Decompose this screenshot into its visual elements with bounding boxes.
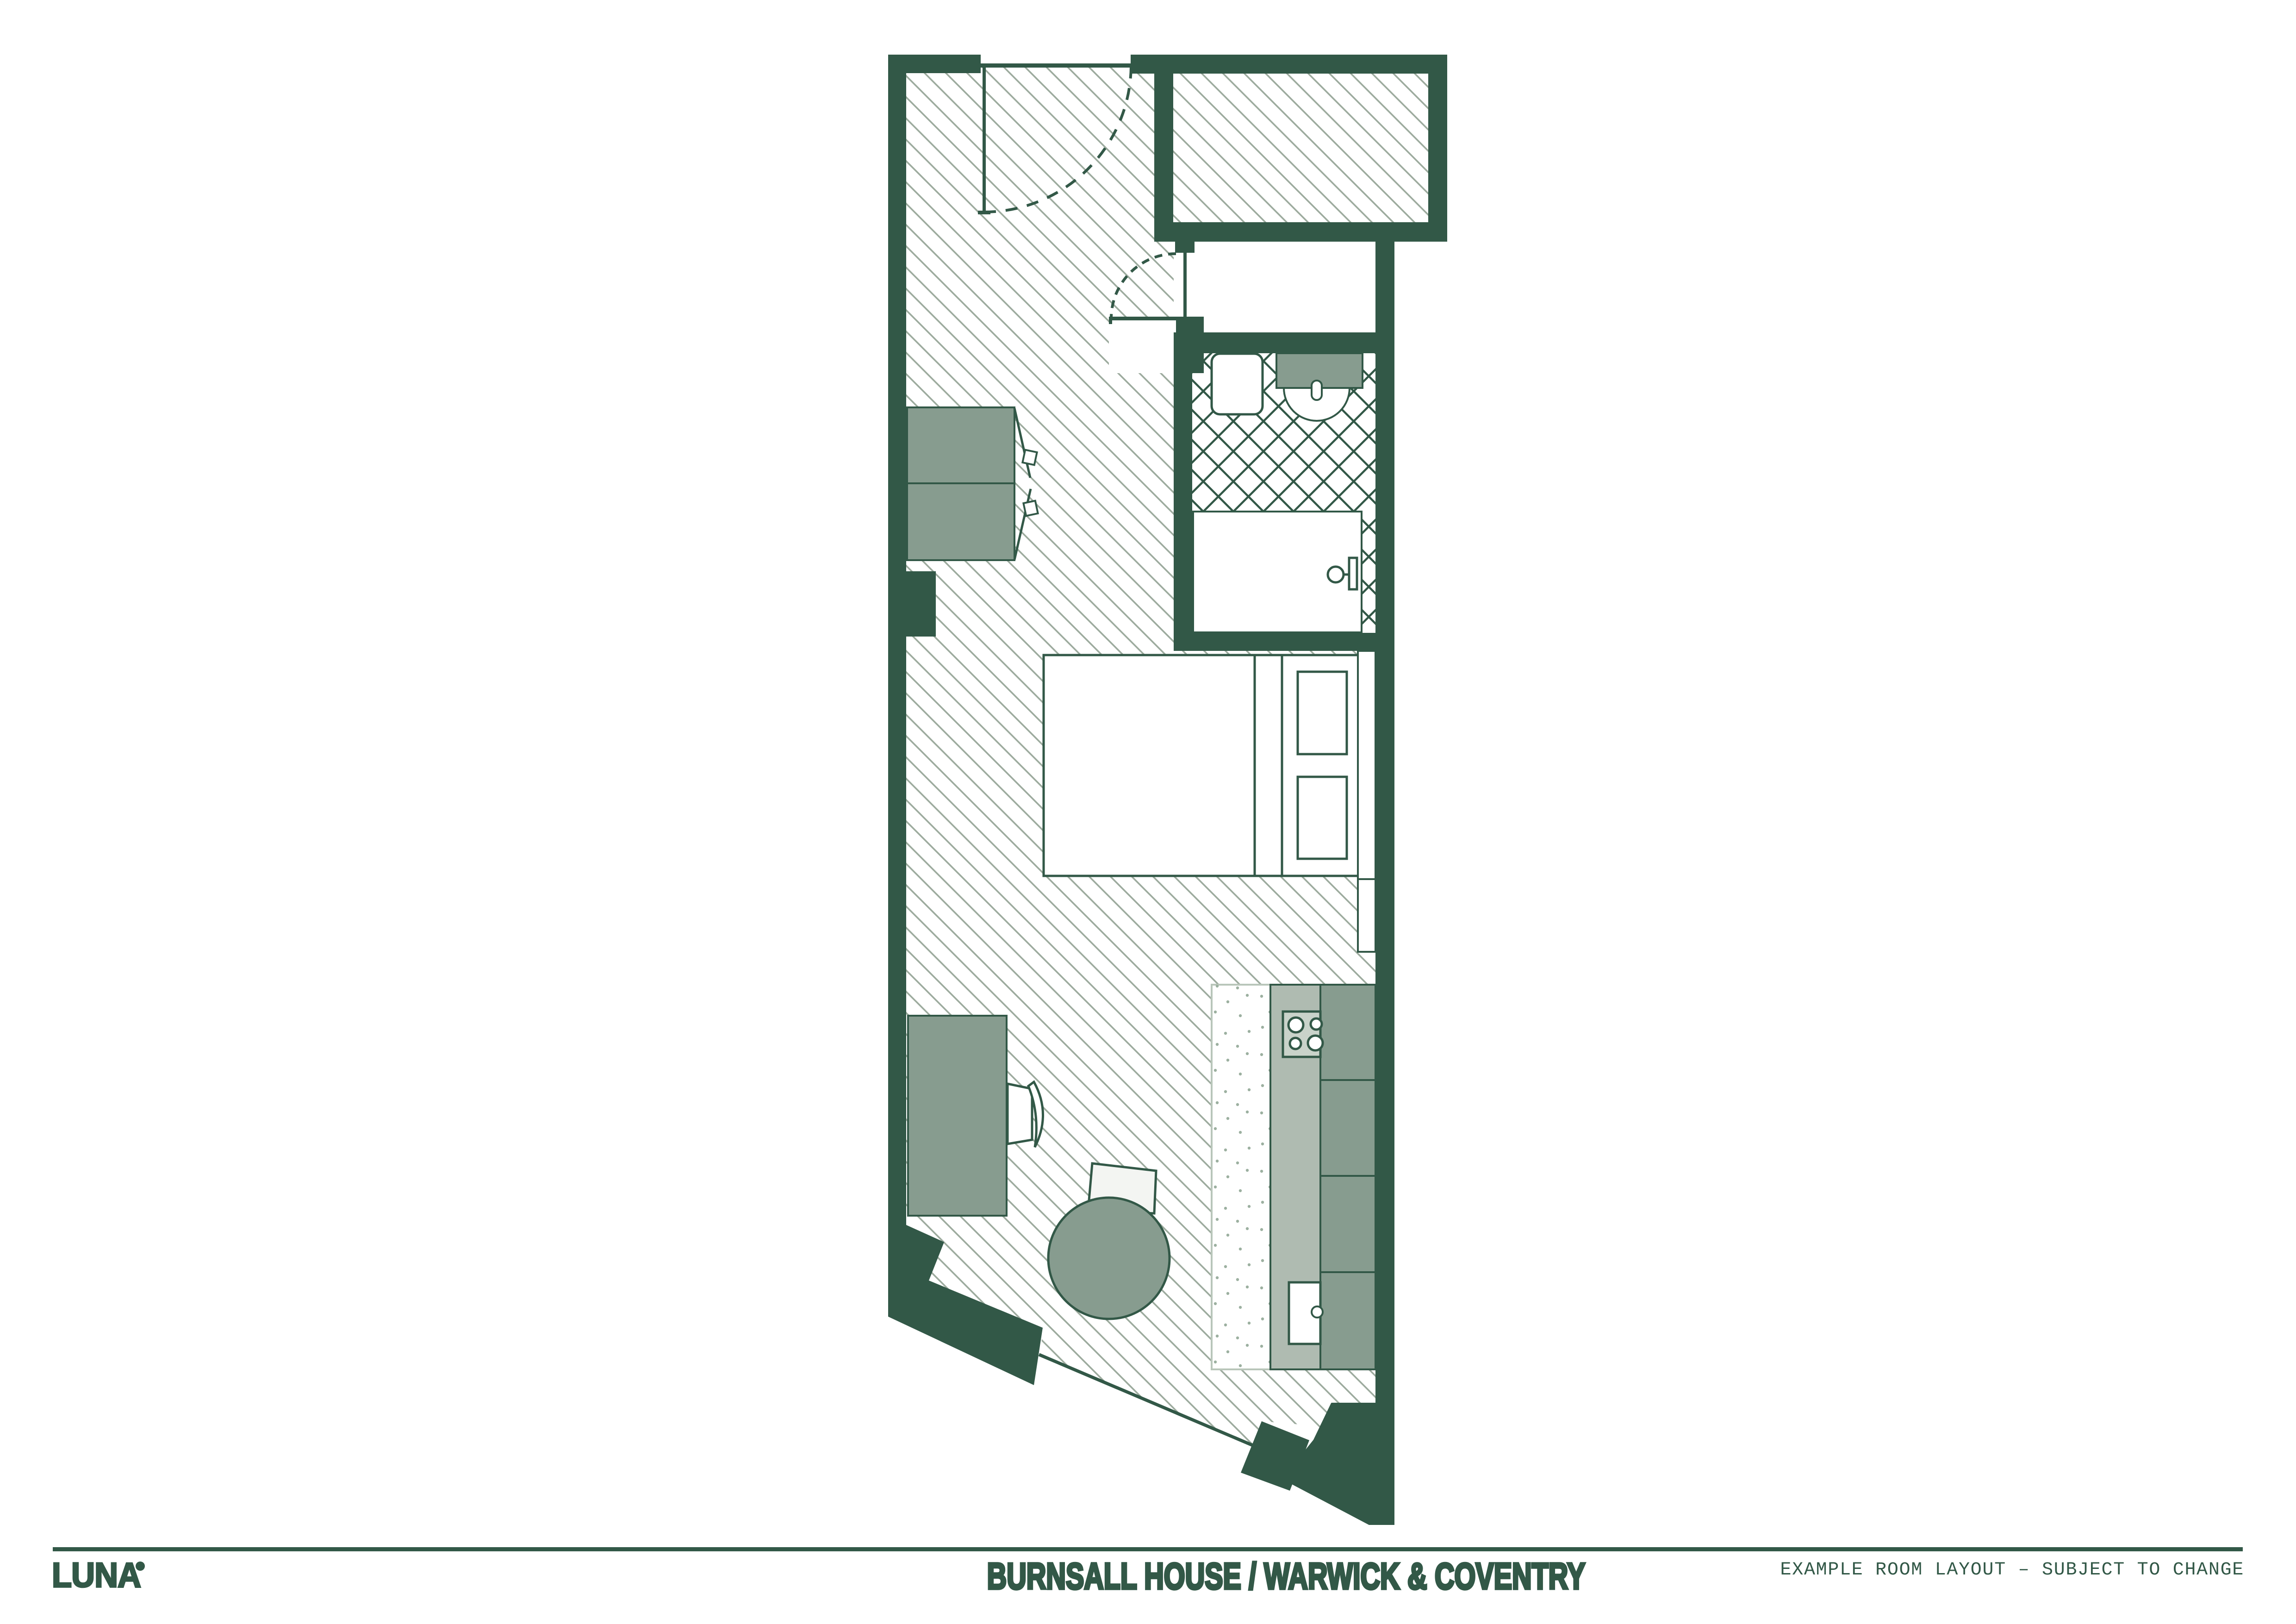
svg-text:EXAMPLE ROOM LAYOUT – SUBJECT: EXAMPLE ROOM LAYOUT – SUBJECT TO CHANGE xyxy=(1780,1560,2244,1580)
svg-text:LUNA: LUNA xyxy=(52,1556,141,1594)
svg-text:BURNSALL HOUSE / WARWICK & COV: BURNSALL HOUSE / WARWICK & COVENTRY xyxy=(987,1555,1586,1597)
